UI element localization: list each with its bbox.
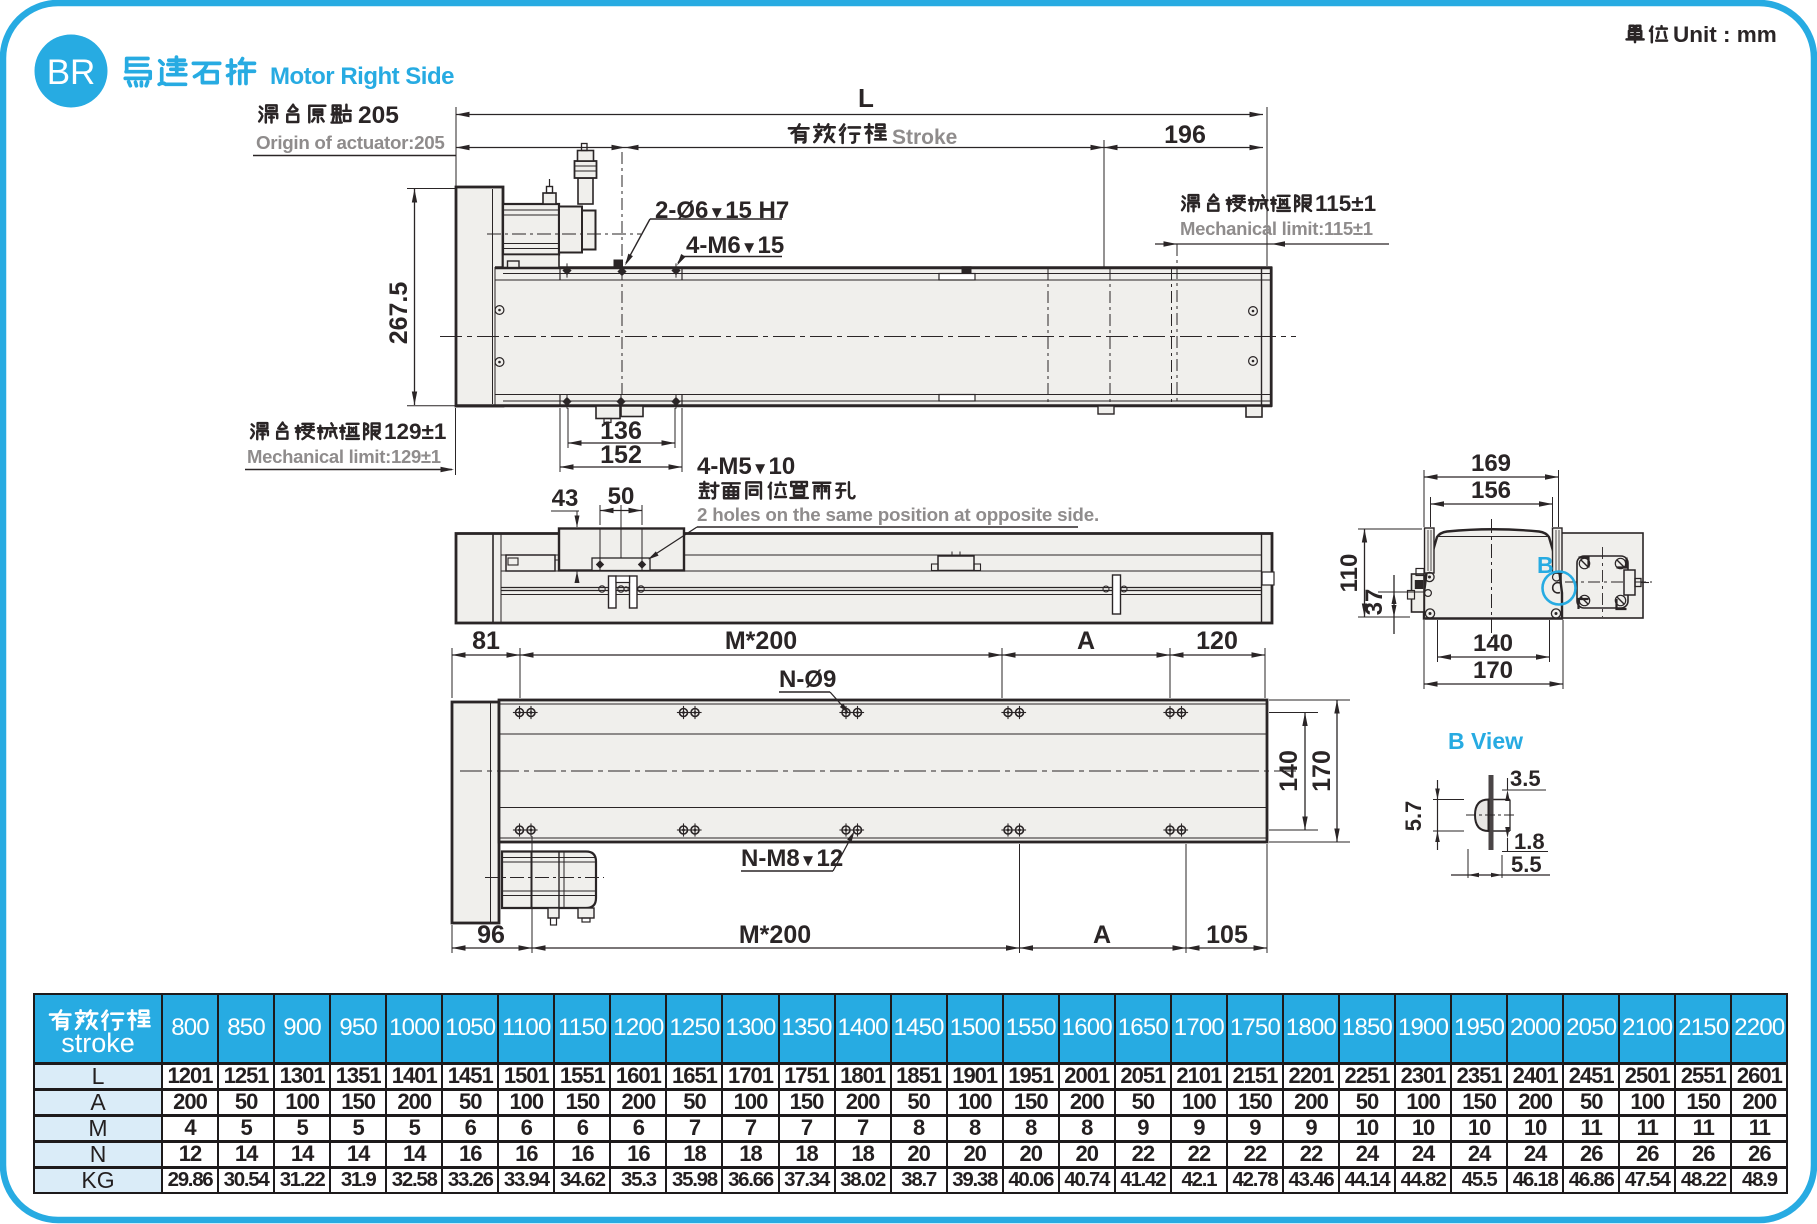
svg-text:A: A [1093,921,1111,949]
svg-text:96: 96 [477,921,505,949]
svg-text:A: A [1077,627,1095,655]
svg-text:115±1: 115±1 [1315,191,1376,216]
svg-text:37: 37 [1361,589,1388,616]
svg-text:170: 170 [1473,657,1513,684]
svg-text:4-M5▼10: 4-M5▼10 [697,453,795,480]
svg-text:110: 110 [1336,554,1363,593]
svg-text:2 holes on the same position a: 2 holes on the same position at opposite… [697,504,1099,525]
svg-text:Stroke: Stroke [892,126,957,149]
svg-text:5.5: 5.5 [1511,852,1542,877]
svg-text:205: 205 [358,102,399,129]
svg-text:M*200: M*200 [739,921,811,949]
svg-text:140: 140 [1275,750,1303,792]
svg-text:43: 43 [552,485,579,512]
svg-text:152: 152 [600,441,642,469]
svg-text:129±1: 129±1 [384,419,446,444]
svg-text:B: B [1537,552,1554,578]
svg-text:Mechanical limit:115±1: Mechanical limit:115±1 [1180,218,1373,239]
svg-text:140: 140 [1473,630,1513,657]
svg-text:L: L [858,83,874,113]
svg-text:156: 156 [1471,477,1511,504]
svg-text:Origin of actuator:205: Origin of actuator:205 [256,132,445,153]
svg-text:M*200: M*200 [725,627,797,655]
svg-text:1.8: 1.8 [1514,829,1545,854]
svg-text:N-M8▼12: N-M8▼12 [741,845,843,872]
svg-text:120: 120 [1196,627,1238,655]
svg-text:4-M6▼15: 4-M6▼15 [686,232,784,259]
svg-text:3.5: 3.5 [1510,766,1541,791]
svg-text:Unit : mm: Unit : mm [1673,22,1777,47]
svg-text:267.5: 267.5 [385,282,413,345]
svg-text:169: 169 [1471,450,1511,477]
svg-text:BR: BR [47,53,96,92]
svg-text:2-Ø6▼15 H7: 2-Ø6▼15 H7 [655,197,789,224]
svg-text:B View: B View [1448,728,1523,754]
svg-text:170: 170 [1308,750,1336,792]
svg-text:5.7: 5.7 [1401,801,1426,832]
svg-text:Motor Right Side: Motor Right Side [270,63,454,90]
svg-text:Mechanical limit:129±1: Mechanical limit:129±1 [247,446,441,467]
svg-text:81: 81 [472,627,500,655]
svg-text:N-Ø9: N-Ø9 [779,666,836,693]
svg-text:50: 50 [608,483,635,510]
svg-text:105: 105 [1206,921,1248,949]
svg-text:196: 196 [1164,121,1206,149]
